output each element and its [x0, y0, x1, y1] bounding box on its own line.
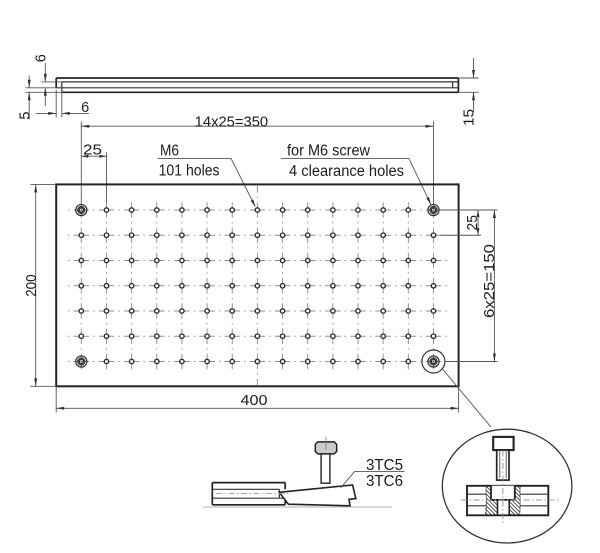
svg-text:6: 6	[81, 100, 89, 116]
svg-text:for M6 screw: for M6 screw	[287, 142, 371, 159]
svg-text:25: 25	[465, 215, 481, 231]
svg-text:14x25=350: 14x25=350	[195, 114, 269, 130]
svg-text:6x25=150: 6x25=150	[482, 244, 498, 318]
svg-text:101 holes: 101 holes	[159, 162, 220, 179]
svg-text:200: 200	[24, 274, 40, 296]
svg-text:M6: M6	[160, 143, 179, 160]
svg-text:3TC6: 3TC6	[366, 473, 403, 490]
svg-text:25: 25	[83, 142, 102, 158]
svg-text:6: 6	[34, 54, 50, 62]
svg-text:15: 15	[461, 109, 477, 126]
svg-text:400: 400	[241, 393, 268, 409]
svg-text:4 clearance holes: 4 clearance holes	[289, 163, 404, 180]
svg-text:5: 5	[17, 112, 33, 120]
